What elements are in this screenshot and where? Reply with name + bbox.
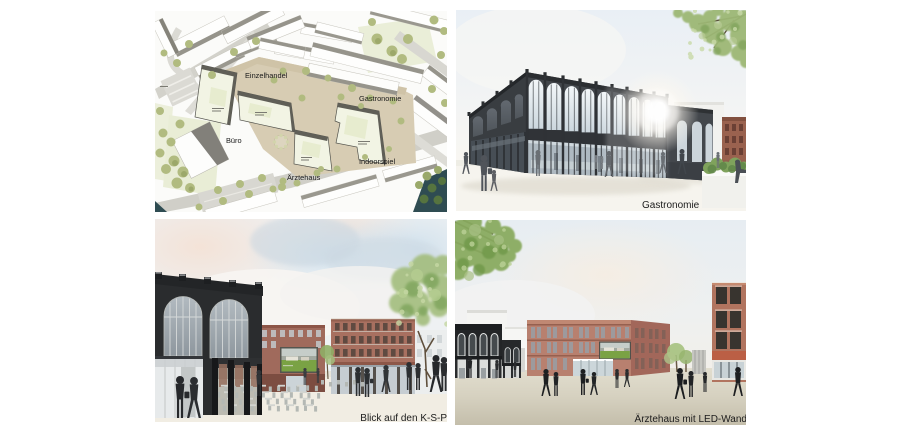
- svg-text:Indoorspiel: Indoorspiel: [359, 157, 396, 166]
- svg-text:Büro: Büro: [226, 136, 242, 145]
- svg-text:Gastronomie: Gastronomie: [359, 94, 401, 103]
- svg-text:Ärztehaus: Ärztehaus: [287, 173, 321, 182]
- svg-text:Blick auf den K-S-P: Blick auf den K-S-P: [360, 413, 447, 422]
- svg-text:Ärztehaus mit LED-Wand: Ärztehaus mit LED-Wand: [635, 413, 746, 425]
- svg-text:Einzelhandel: Einzelhandel: [245, 71, 288, 80]
- svg-text:Gastronomie: Gastronomie: [642, 200, 700, 211]
